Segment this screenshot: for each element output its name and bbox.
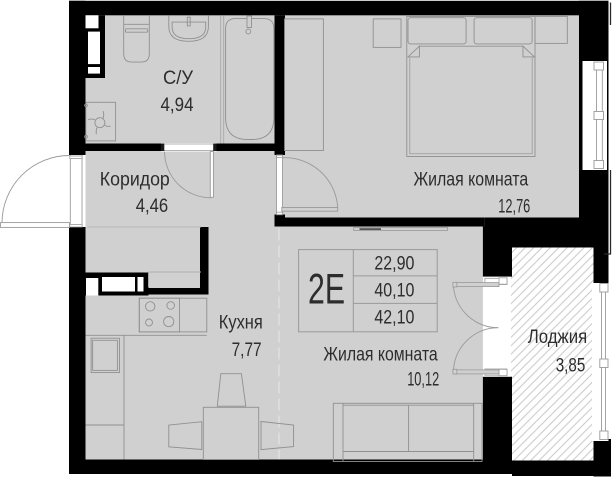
svg-text:Кухня: Кухня	[219, 312, 263, 333]
svg-text:2Е: 2Е	[308, 265, 345, 313]
svg-text:40,10: 40,10	[374, 281, 414, 302]
svg-text:10,12: 10,12	[407, 369, 439, 390]
svg-text:42,10: 42,10	[374, 308, 414, 329]
svg-text:С/У: С/У	[163, 68, 194, 89]
svg-text:12,76: 12,76	[498, 196, 530, 217]
svg-text:4,46: 4,46	[136, 196, 169, 217]
svg-text:22,90: 22,90	[374, 254, 414, 275]
svg-text:4,94: 4,94	[161, 95, 194, 116]
svg-text:3,85: 3,85	[556, 356, 586, 377]
svg-text:Коридор: Коридор	[100, 169, 170, 190]
svg-text:Жилая комната: Жилая комната	[323, 345, 438, 366]
svg-text:Жилая комната: Жилая комната	[414, 170, 529, 191]
svg-text:7,77: 7,77	[232, 340, 262, 361]
svg-text:Лоджия: Лоджия	[528, 327, 587, 348]
